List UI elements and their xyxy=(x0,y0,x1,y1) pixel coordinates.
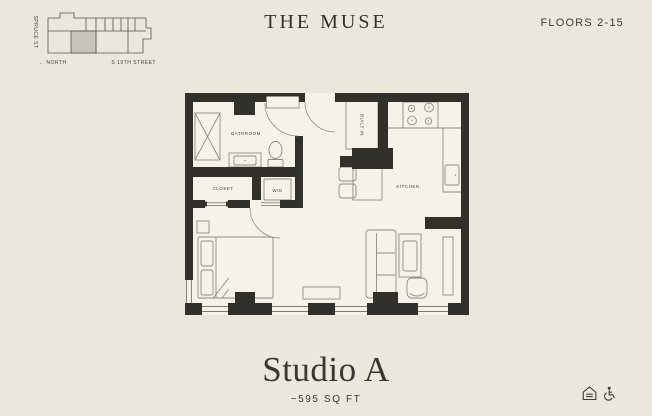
site-highlighted-unit xyxy=(71,31,96,53)
footer-icons xyxy=(582,386,616,401)
label-built-in: BUILT IN xyxy=(360,114,365,136)
label-kitchen: KITCHEN xyxy=(396,184,419,189)
unit-area: ~595 SQ FT xyxy=(0,394,652,405)
unit-floor-plan: BATHROOM CLOSET W/D BUILT IN KITCHEN xyxy=(185,87,469,325)
street-label-19th: S 19TH STREET xyxy=(111,60,156,66)
north-label: ← NORTH xyxy=(39,60,67,66)
label-closet: CLOSET xyxy=(212,186,233,191)
equal-housing-icon xyxy=(582,386,597,401)
label-bathroom: BATHROOM xyxy=(231,131,261,136)
floor-plan-page: SPRUCE ST ← NORTH S 19TH STREET THE MUSE… xyxy=(0,0,652,416)
accessibility-icon xyxy=(601,386,616,401)
floors-label: FLOORS 2-15 xyxy=(540,17,624,29)
unit-name: Studio A xyxy=(0,350,652,390)
label-washer-dryer: W/D xyxy=(272,188,282,193)
